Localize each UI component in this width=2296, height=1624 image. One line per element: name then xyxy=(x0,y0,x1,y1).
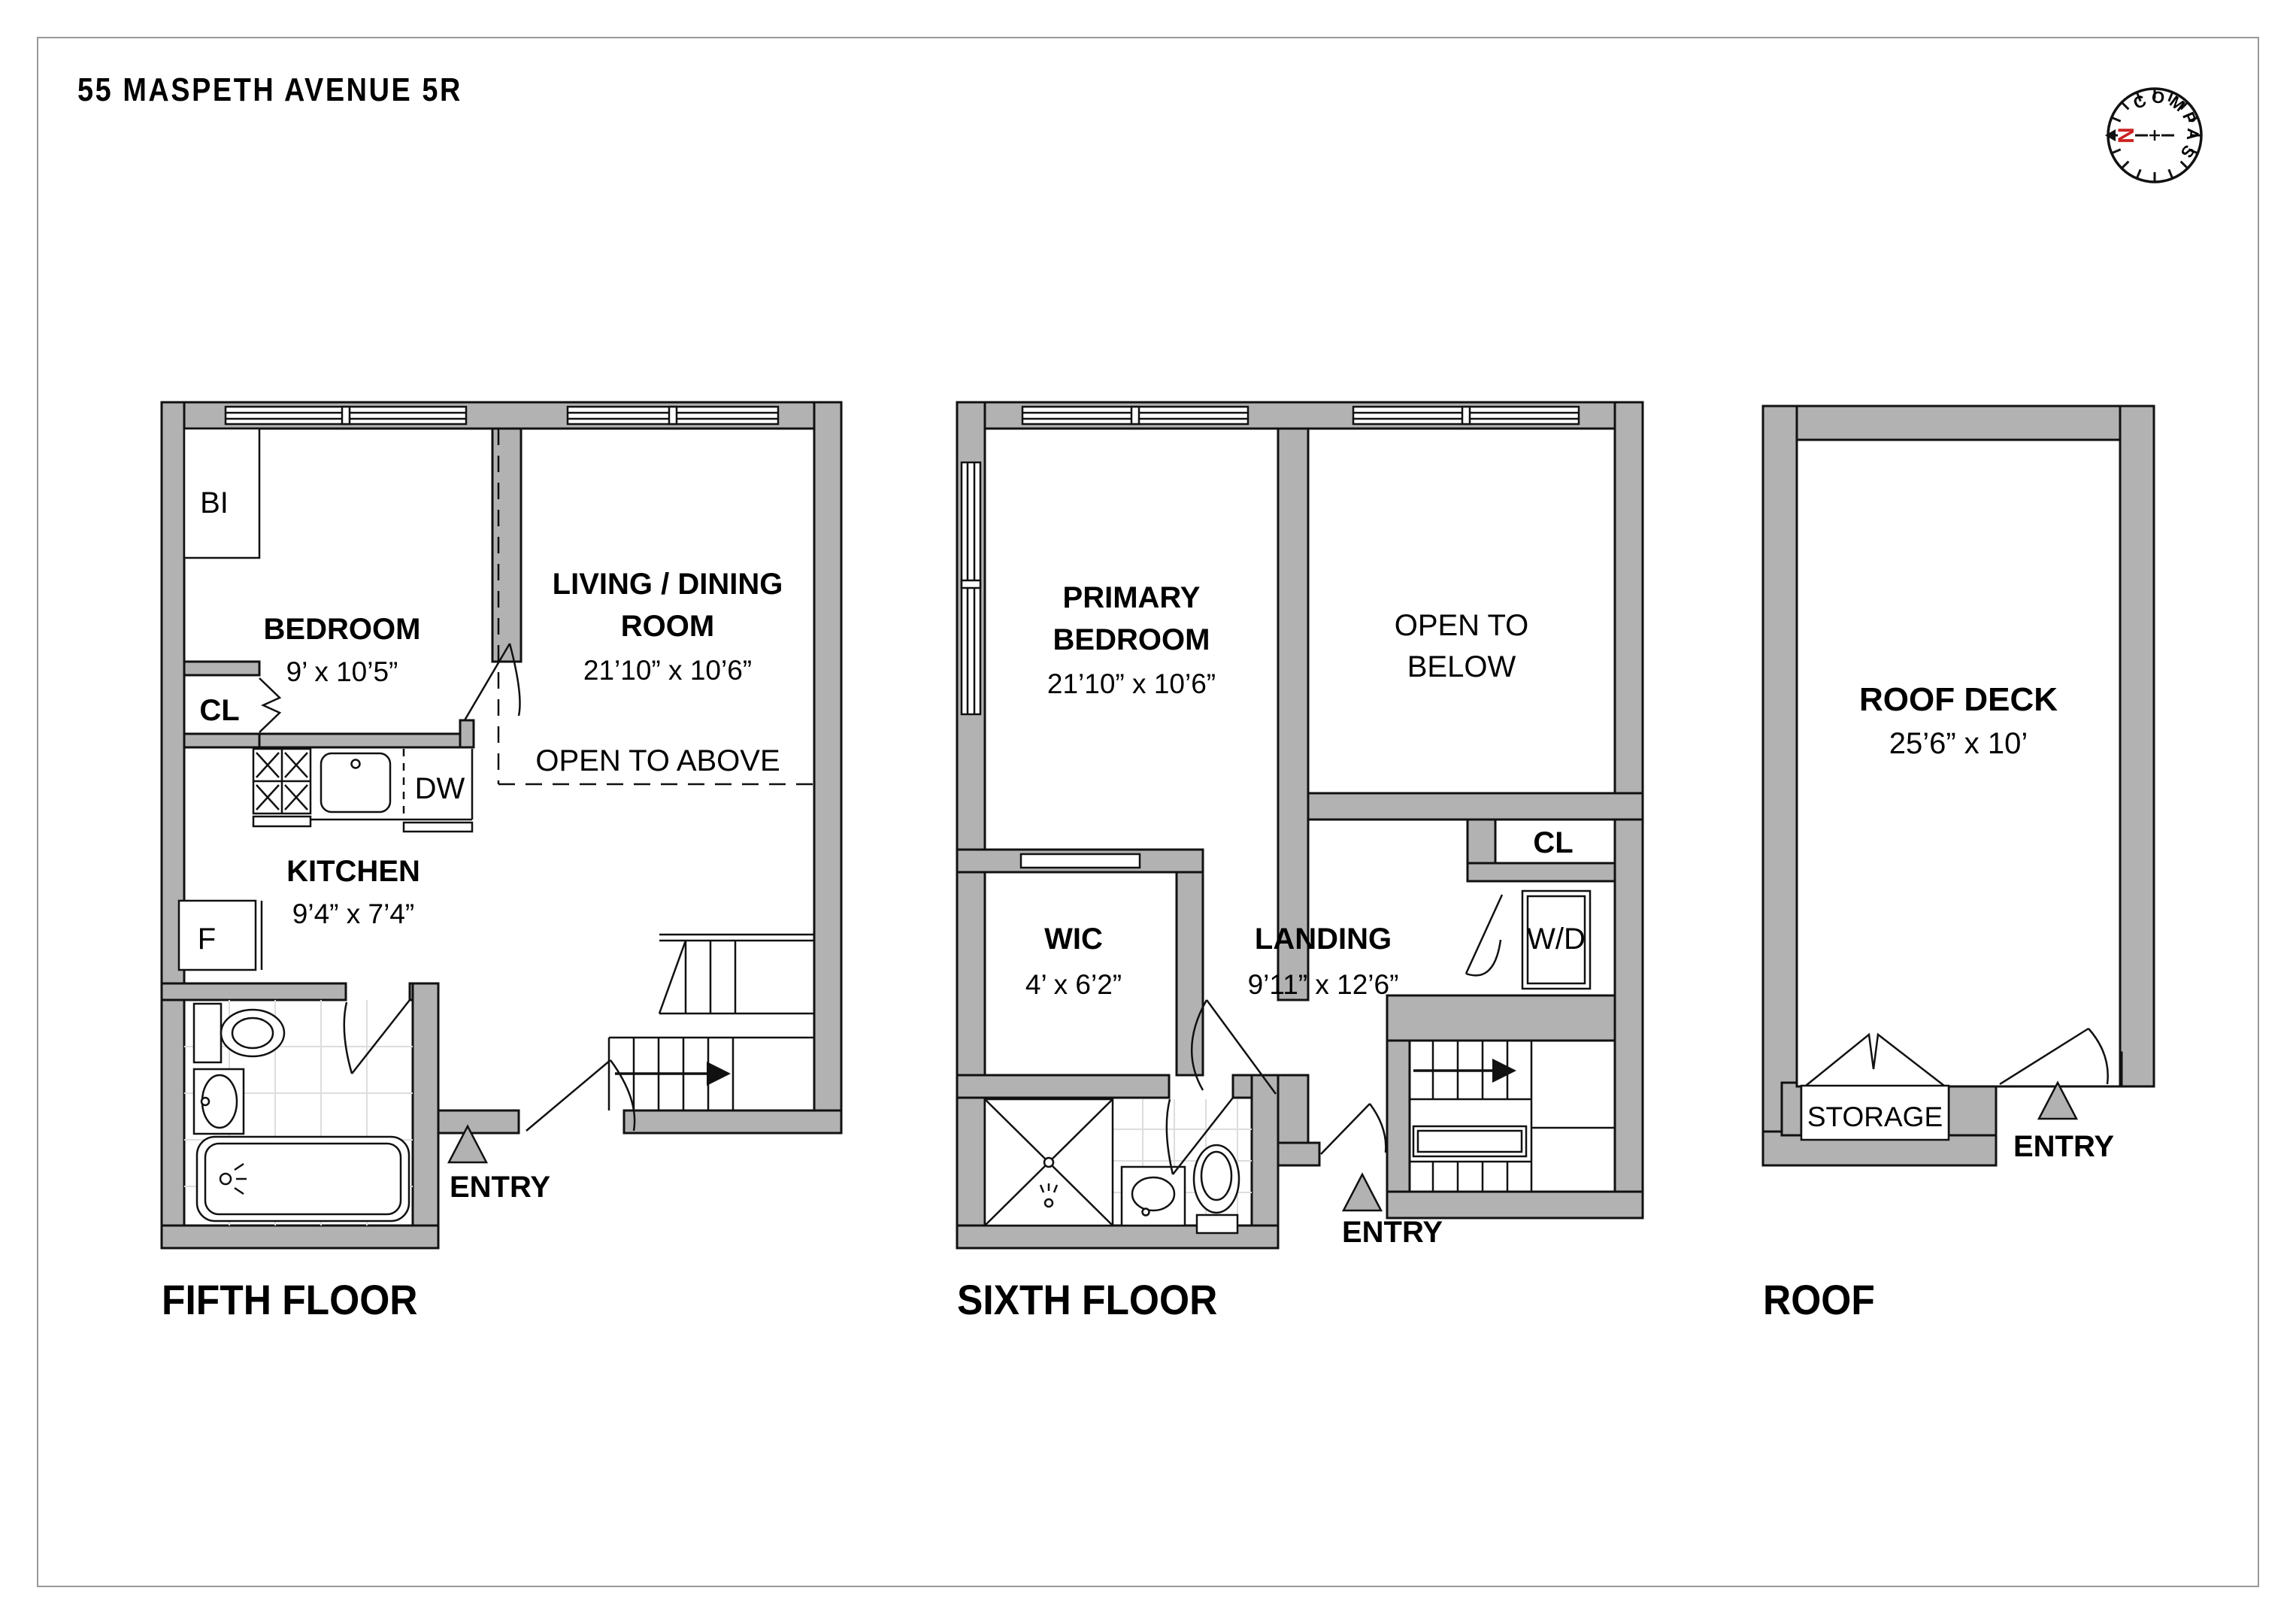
living-room-label-2: ROOM xyxy=(621,610,714,643)
washer-dryer-label: W/D xyxy=(1527,923,1586,956)
pedestal-sink-icon xyxy=(194,1069,244,1134)
dishwasher-label: DW xyxy=(415,772,465,805)
fridge-icon: F xyxy=(179,901,262,970)
toilet-sixth-icon xyxy=(1194,1145,1239,1233)
landing-dims: 9’11” x 12’6” xyxy=(1248,969,1399,1000)
floorplan-page: 55 MASPETH AVENUE 5R COMPASS N xyxy=(0,0,2296,1624)
roof-title: ROOF xyxy=(1763,1277,1875,1323)
roof-deck-dims: 25’6” x 10’ xyxy=(1889,727,2028,760)
wic-label: WIC xyxy=(1044,923,1103,956)
floorplan-canvas: 55 MASPETH AVENUE 5R COMPASS N xyxy=(0,0,2296,1624)
living-room-dims: 21’10” x 10’6” xyxy=(583,655,752,686)
living-room-label-1: LIVING / DINING xyxy=(553,568,783,601)
wic-dims: 4’ x 6’2” xyxy=(1025,969,1122,1000)
open-to-below-label-2: BELOW xyxy=(1407,650,1516,683)
bedroom-dims: 9’ x 10’5” xyxy=(286,656,398,687)
open-to-above-label: OPEN TO ABOVE xyxy=(535,744,780,777)
page-title: 55 MASPETH AVENUE 5R xyxy=(77,71,462,108)
bedroom-label: BEDROOM xyxy=(264,613,421,646)
primary-bedroom-label-2: BEDROOM xyxy=(1053,623,1210,656)
fridge-label: F xyxy=(198,923,216,956)
sink-sixth-icon xyxy=(1122,1167,1185,1226)
shower-icon xyxy=(985,1099,1113,1226)
cl-label-sixth: CL xyxy=(1533,826,1573,859)
dw-panel xyxy=(404,823,472,832)
primary-bedroom-dims: 21’10” x 10’6” xyxy=(1047,668,1216,699)
entry-label: ENTRY xyxy=(450,1171,550,1204)
cl-label: CL xyxy=(199,694,239,727)
bi-closet-label: BI xyxy=(200,486,229,520)
roof-deck-label: ROOF DECK xyxy=(1859,681,2058,718)
sixth-floor-title: SIXTH FLOOR xyxy=(957,1277,1217,1323)
kitchen-dims: 9’4” x 7’4” xyxy=(292,898,414,929)
landing-label: LANDING xyxy=(1255,923,1392,956)
open-to-below-label-1: OPEN TO xyxy=(1395,609,1529,642)
storage-label: STORAGE xyxy=(1807,1101,1943,1132)
primary-bedroom-label-1: PRIMARY xyxy=(1063,581,1201,614)
sliding-door xyxy=(1021,854,1140,868)
sink-icon xyxy=(321,753,390,812)
entry-label-roof: ENTRY xyxy=(2013,1130,2114,1163)
kitchen-label: KITCHEN xyxy=(286,855,420,888)
roof-deck-floor xyxy=(1797,440,2120,1086)
bathtub-icon xyxy=(197,1137,409,1221)
fifth-floor-title: FIFTH FLOOR xyxy=(162,1277,417,1323)
entry-label-sixth: ENTRY xyxy=(1342,1216,1443,1249)
